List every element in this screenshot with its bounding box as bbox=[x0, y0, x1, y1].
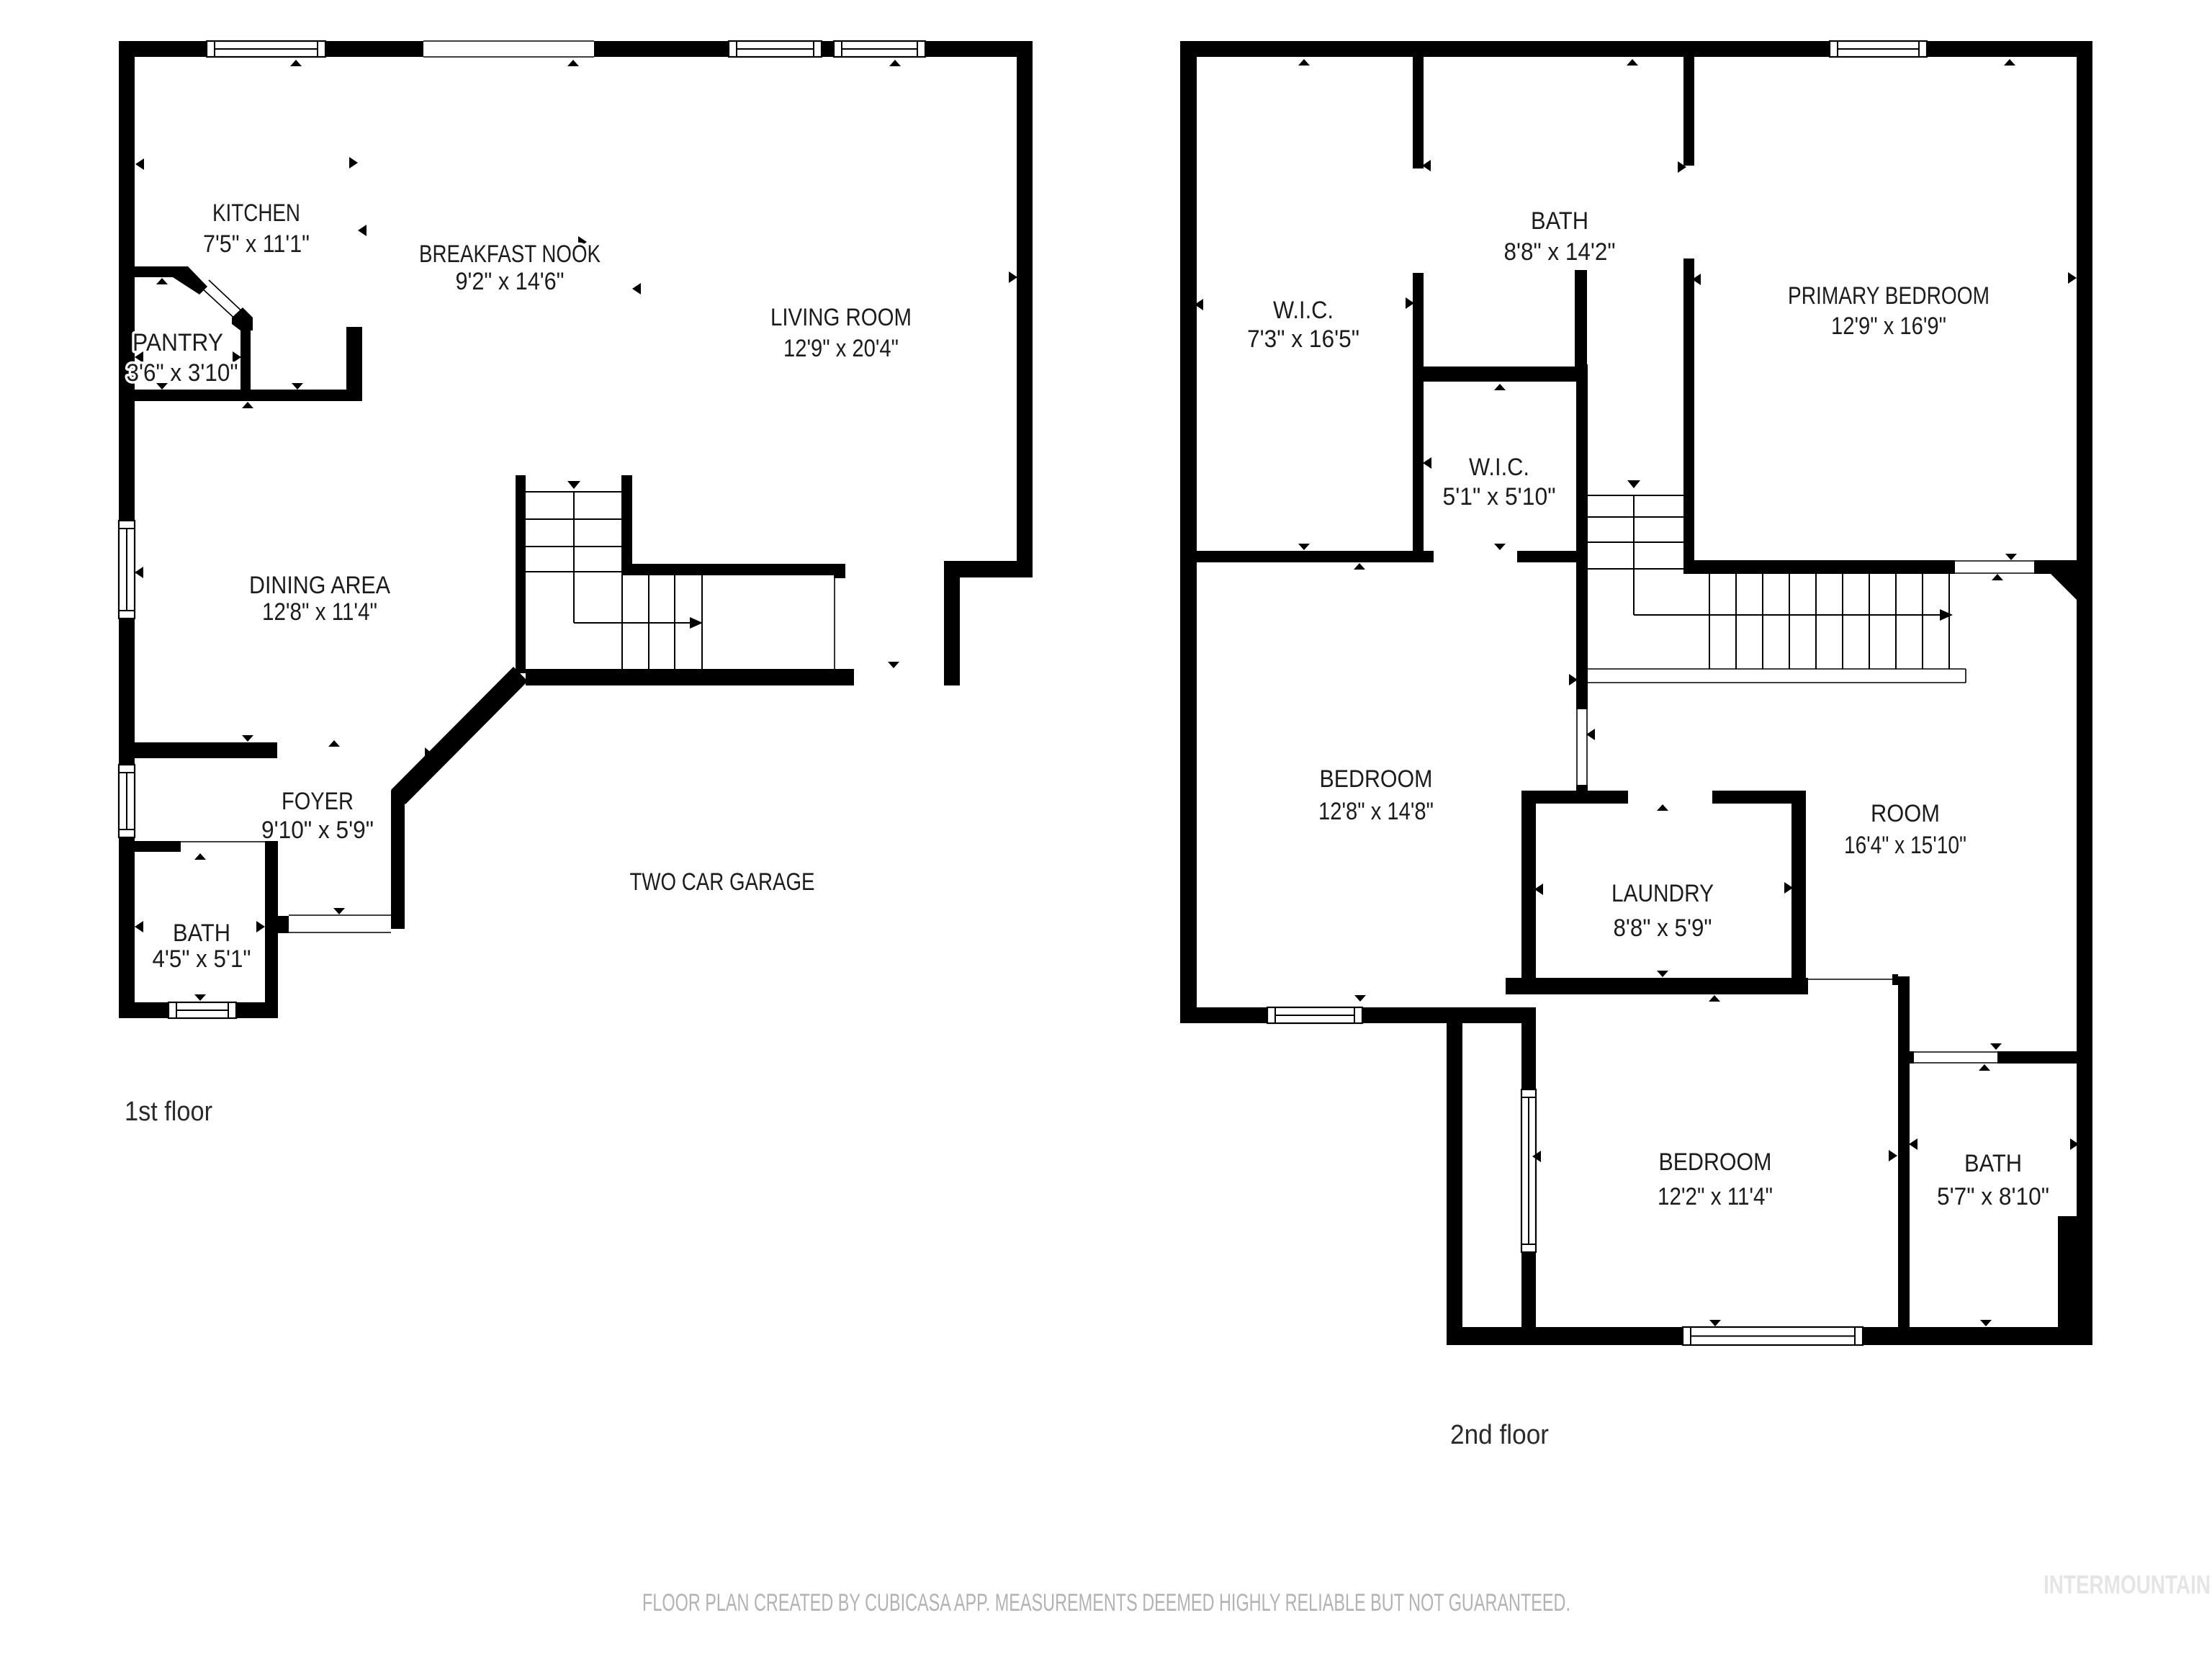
svg-text:12'8" x 11'4": 12'8" x 11'4" bbox=[262, 598, 377, 626]
svg-text:W.I.C.: W.I.C. bbox=[1273, 297, 1334, 324]
svg-text:BEDROOM: BEDROOM bbox=[1659, 1148, 1772, 1176]
svg-text:TWO CAR GARAGE: TWO CAR GARAGE bbox=[630, 868, 815, 896]
svg-text:8'8" x 5'9": 8'8" x 5'9" bbox=[1614, 914, 1712, 942]
svg-text:FOYER: FOYER bbox=[282, 788, 354, 815]
svg-text:KITCHEN: KITCHEN bbox=[212, 199, 300, 227]
svg-text:LIVING ROOM: LIVING ROOM bbox=[770, 304, 912, 331]
svg-text:FLOOR PLAN CREATED BY CUBICASA: FLOOR PLAN CREATED BY CUBICASA APP. MEAS… bbox=[642, 1589, 1570, 1617]
svg-text:3'6" x 3'10": 3'6" x 3'10" bbox=[127, 359, 238, 387]
svg-text:DINING AREA: DINING AREA bbox=[249, 572, 390, 599]
svg-text:ROOM: ROOM bbox=[1871, 800, 1940, 827]
svg-text:4'5" x 5'1": 4'5" x 5'1" bbox=[153, 945, 251, 973]
svg-text:LAUNDRY: LAUNDRY bbox=[1611, 880, 1714, 907]
svg-text:PRIMARY BEDROOM: PRIMARY BEDROOM bbox=[1788, 282, 1990, 310]
svg-text:8'8" x 14'2": 8'8" x 14'2" bbox=[1504, 238, 1616, 266]
svg-text:12'9" x 16'9": 12'9" x 16'9" bbox=[1831, 313, 1946, 340]
svg-text:5'7" x 8'10": 5'7" x 8'10" bbox=[1937, 1183, 2049, 1210]
svg-text:5'1" x 5'10": 5'1" x 5'10" bbox=[1443, 483, 1556, 511]
svg-text:12'2" x 11'4": 12'2" x 11'4" bbox=[1658, 1183, 1773, 1210]
svg-text:BATH: BATH bbox=[1964, 1150, 2022, 1177]
svg-text:PANTRY: PANTRY bbox=[132, 329, 223, 356]
svg-text:BEDROOM: BEDROOM bbox=[1320, 765, 1433, 793]
svg-text:BATH: BATH bbox=[1531, 207, 1588, 235]
svg-text:16'4" x 15'10": 16'4" x 15'10" bbox=[1844, 832, 1966, 859]
svg-text:9'2" x 14'6": 9'2" x 14'6" bbox=[456, 268, 565, 295]
svg-text:INTERMOUNTAIN: INTERMOUNTAIN bbox=[2044, 1570, 2211, 1599]
svg-text:12'9" x 20'4": 12'9" x 20'4" bbox=[783, 335, 899, 362]
svg-text:9'10" x 5'9": 9'10" x 5'9" bbox=[261, 817, 374, 844]
svg-text:BREAKFAST NOOK: BREAKFAST NOOK bbox=[419, 240, 601, 268]
svg-text:BATH: BATH bbox=[173, 920, 230, 947]
svg-text:2nd floor: 2nd floor bbox=[1450, 1420, 1549, 1450]
svg-text:12'8" x 14'8": 12'8" x 14'8" bbox=[1318, 798, 1434, 825]
svg-text:1st floor: 1st floor bbox=[125, 1097, 212, 1127]
svg-text:7'5" x 11'1": 7'5" x 11'1" bbox=[203, 230, 310, 258]
svg-text:W.I.C.: W.I.C. bbox=[1469, 454, 1529, 481]
svg-text:7'3" x 16'5": 7'3" x 16'5" bbox=[1247, 325, 1359, 353]
